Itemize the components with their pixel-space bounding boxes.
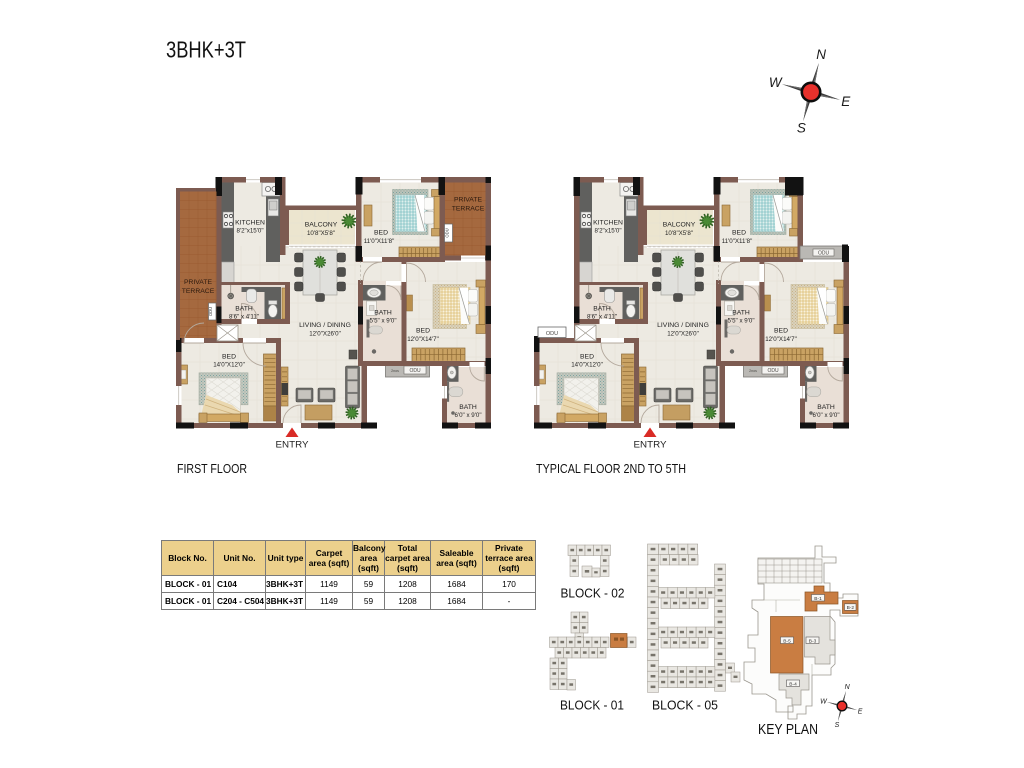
svg-text:5'5" x 9'0": 5'5" x 9'0" [369,318,396,325]
svg-text:E: E [858,708,863,715]
svg-text:BATH: BATH [732,310,750,317]
svg-text:B-2: B-2 [847,605,855,611]
svg-text:KEY PLAN: KEY PLAN [758,722,818,738]
svg-text:8'6" x 4'11": 8'6" x 4'11" [587,314,617,321]
svg-text:B-5: B-5 [783,638,791,644]
svg-text:BLOCK - 01: BLOCK - 01 [560,698,624,713]
svg-text:10'8"X5'8": 10'8"X5'8" [665,230,693,237]
svg-text:TYPICAL FLOOR 2ND TO 5TH: TYPICAL FLOOR 2ND TO 5TH [536,461,686,476]
svg-text:14'0"X12'0": 14'0"X12'0" [213,362,245,369]
svg-text:10'8"X5'8": 10'8"X5'8" [307,230,335,237]
svg-text:BATH: BATH [374,310,392,317]
svg-text:BED: BED [222,354,236,361]
svg-text:BED: BED [774,328,788,335]
svg-text:E: E [841,94,851,109]
svg-text:ODU: ODU [208,307,213,316]
svg-text:BALCONY: BALCONY [663,222,696,229]
svg-text:BED: BED [732,230,746,237]
svg-text:PRIVATE: PRIVATE [454,197,483,204]
svg-text:LIVING / DINING: LIVING / DINING [657,322,709,329]
svg-text:BALCONY: BALCONY [305,222,338,229]
svg-text:ODU: ODU [409,368,421,374]
svg-text:ODU: ODU [546,331,558,337]
svg-text:KITCHEN: KITCHEN [593,220,623,227]
svg-text:8'6" x 4'11": 8'6" x 4'11" [229,314,259,321]
svg-text:8'2"x15'0": 8'2"x15'0" [236,228,263,235]
svg-text:BATH: BATH [235,306,253,313]
svg-text:LIVING / DINING: LIVING / DINING [299,322,351,329]
svg-text:BED: BED [580,354,594,361]
svg-text:BATH: BATH [459,404,477,411]
svg-text:11'0"X11'8": 11'0"X11'8" [364,238,395,245]
svg-text:ENTRY: ENTRY [276,440,309,450]
svg-text:2nos: 2nos [749,369,757,373]
svg-text:12'0"X14'7": 12'0"X14'7" [407,336,439,343]
svg-text:FIRST FLOOR: FIRST FLOOR [177,461,247,476]
svg-text:BED: BED [374,230,388,237]
svg-text:PRIVATE: PRIVATE [184,279,213,286]
svg-text:5'5" x 9'0": 5'5" x 9'0" [727,318,754,325]
svg-text:KITCHEN: KITCHEN [235,220,265,227]
svg-text:ODU: ODU [818,251,830,257]
svg-text:14'0"X12'0": 14'0"X12'0" [571,362,603,369]
svg-text:B-3: B-3 [809,638,817,644]
svg-text:BATH: BATH [817,404,835,411]
svg-text:3BHK+3T: 3BHK+3T [166,37,246,63]
svg-text:11'0"X11'8": 11'0"X11'8" [722,238,753,245]
svg-text:BLOCK - 05: BLOCK - 05 [652,698,718,713]
svg-text:2nos: 2nos [391,369,399,373]
svg-text:12'0"X26'0": 12'0"X26'0" [667,331,699,338]
svg-text:BLOCK - 02: BLOCK - 02 [561,586,625,601]
svg-text:TERRACE: TERRACE [182,288,215,295]
svg-text:6'0" x 9'0": 6'0" x 9'0" [454,412,481,419]
svg-text:S: S [835,722,840,729]
svg-text:12'0"X26'0": 12'0"X26'0" [309,331,341,338]
svg-text:8'2"x15'0": 8'2"x15'0" [594,228,621,235]
svg-text:B-1: B-1 [814,596,822,602]
svg-text:BATH: BATH [593,306,611,313]
svg-text:12'0"X14'7": 12'0"X14'7" [765,336,797,343]
svg-text:ODU: ODU [767,368,779,374]
svg-text:BED: BED [416,328,430,335]
svg-text:S: S [797,121,806,136]
svg-text:N: N [816,47,826,62]
svg-text:W: W [769,75,783,90]
svg-text:TERRACE: TERRACE [452,206,485,213]
svg-text:6'0" x 9'0": 6'0" x 9'0" [812,412,839,419]
svg-text:ENTRY: ENTRY [634,440,667,450]
svg-text:ODU: ODU [444,228,449,237]
svg-text:B-4: B-4 [789,681,797,687]
